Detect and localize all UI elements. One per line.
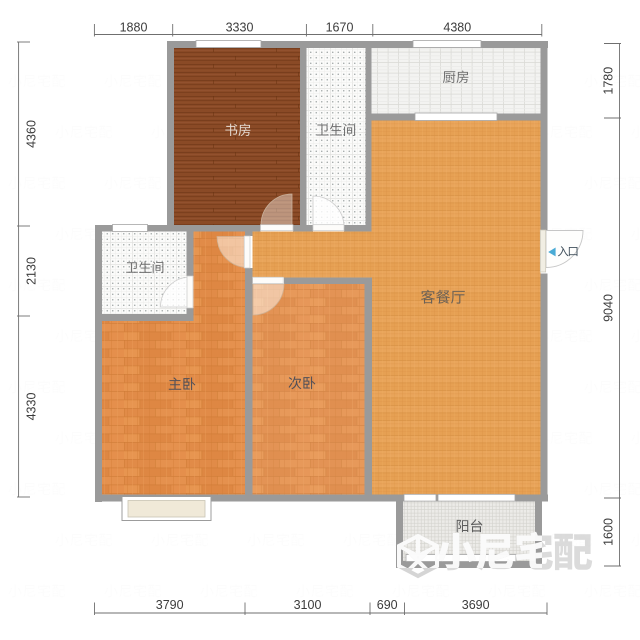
svg-text:4330: 4330 xyxy=(25,393,39,421)
svg-text:1880: 1880 xyxy=(120,21,148,35)
svg-text:1670: 1670 xyxy=(326,21,354,35)
svg-text:3330: 3330 xyxy=(226,21,254,35)
svg-text:3100: 3100 xyxy=(294,598,322,612)
svg-text:690: 690 xyxy=(377,598,398,612)
svg-text:4380: 4380 xyxy=(443,21,471,35)
svg-text:2130: 2130 xyxy=(25,257,39,285)
svg-text:3690: 3690 xyxy=(462,598,490,612)
svg-text:3790: 3790 xyxy=(156,598,184,612)
svg-text:9040: 9040 xyxy=(602,294,616,322)
svg-text:1600: 1600 xyxy=(602,518,616,546)
svg-text:1780: 1780 xyxy=(602,67,616,95)
svg-text:4360: 4360 xyxy=(25,120,39,148)
